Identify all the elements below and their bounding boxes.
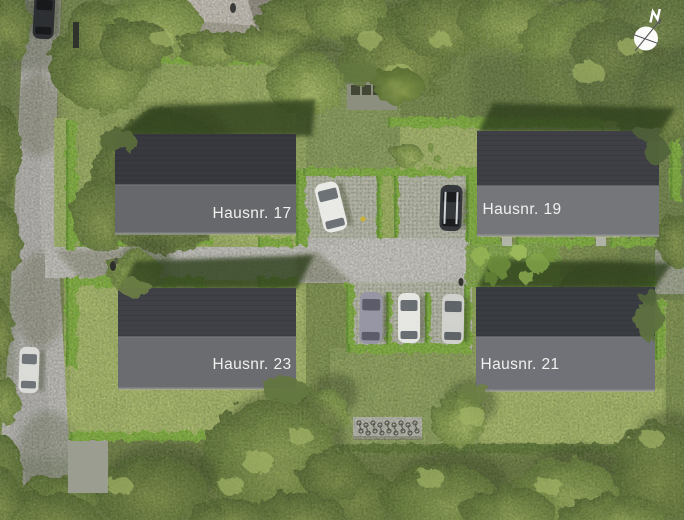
svg-text:Hausnr. 19: Hausnr. 19 (483, 201, 562, 218)
svg-text:Hausnr. 23: Hausnr. 23 (213, 356, 292, 373)
svg-text:Hausnr. 21: Hausnr. 21 (481, 356, 560, 373)
svg-text:Hausnr. 17: Hausnr. 17 (213, 205, 292, 222)
